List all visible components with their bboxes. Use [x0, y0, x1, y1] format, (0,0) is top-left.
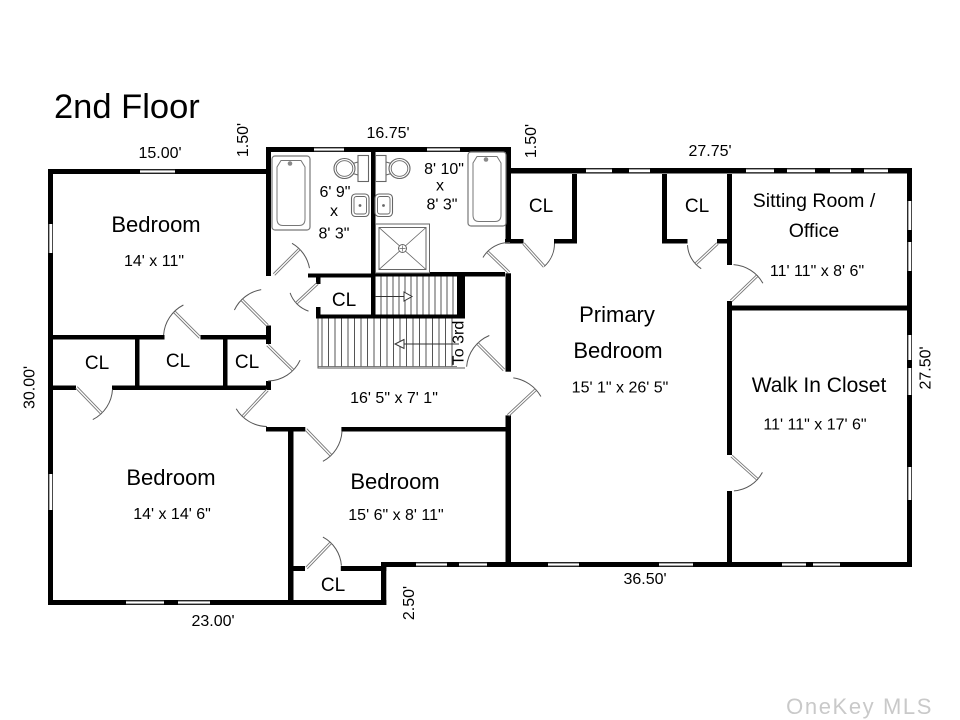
svg-text:16' 5" x 7' 1": 16' 5" x 7' 1" — [350, 390, 438, 407]
svg-text:1.50': 1.50' — [235, 123, 252, 157]
svg-text:8' 3": 8' 3" — [427, 197, 458, 214]
svg-text:Sitting Room /: Sitting Room / — [753, 190, 876, 212]
svg-text:CL: CL — [685, 196, 709, 217]
svg-text:8' 10": 8' 10" — [424, 161, 464, 178]
svg-text:36.50': 36.50' — [623, 571, 666, 588]
svg-text:11' 11" x 8' 6": 11' 11" x 8' 6" — [770, 263, 864, 280]
svg-text:15' 6" x 8' 11": 15' 6" x 8' 11" — [348, 507, 443, 524]
svg-text:1.50': 1.50' — [523, 124, 540, 158]
svg-text:CL: CL — [166, 351, 190, 372]
svg-text:x: x — [436, 178, 444, 195]
svg-text:CL: CL — [235, 352, 259, 373]
svg-text:15.00': 15.00' — [138, 145, 181, 162]
svg-text:Primary: Primary — [579, 302, 655, 327]
svg-text:14' x 11": 14' x 11" — [124, 253, 184, 270]
svg-text:CL: CL — [85, 353, 109, 374]
svg-text:CL: CL — [529, 196, 553, 217]
svg-text:Bedroom: Bedroom — [126, 465, 215, 490]
svg-text:To 3rd: To 3rd — [451, 321, 468, 365]
svg-text:30.00': 30.00' — [22, 366, 39, 409]
svg-text:Bedroom: Bedroom — [350, 469, 439, 494]
svg-text:6' 9": 6' 9" — [320, 184, 351, 201]
svg-text:15' 1" x 26' 5": 15' 1" x 26' 5" — [572, 380, 669, 397]
svg-text:11' 11" x 17' 6": 11' 11" x 17' 6" — [763, 417, 866, 434]
svg-text:Walk In Closet: Walk In Closet — [752, 374, 887, 397]
svg-text:Office: Office — [789, 220, 840, 242]
svg-text:2.50': 2.50' — [401, 586, 418, 620]
svg-text:27.75': 27.75' — [688, 143, 731, 160]
svg-text:8' 3": 8' 3" — [319, 226, 350, 243]
svg-text:Bedroom: Bedroom — [111, 212, 200, 237]
svg-text:x: x — [330, 203, 338, 220]
svg-text:27.50': 27.50' — [918, 346, 935, 389]
svg-text:16.75': 16.75' — [366, 125, 409, 142]
svg-text:Bedroom: Bedroom — [573, 338, 662, 363]
svg-text:14' x 14' 6": 14' x 14' 6" — [133, 506, 211, 523]
svg-text:OneKey MLS: OneKey MLS — [786, 694, 933, 719]
svg-text:CL: CL — [332, 290, 356, 311]
svg-text:CL: CL — [321, 575, 345, 596]
svg-text:2nd Floor: 2nd Floor — [54, 88, 200, 126]
svg-text:23.00': 23.00' — [191, 613, 234, 630]
